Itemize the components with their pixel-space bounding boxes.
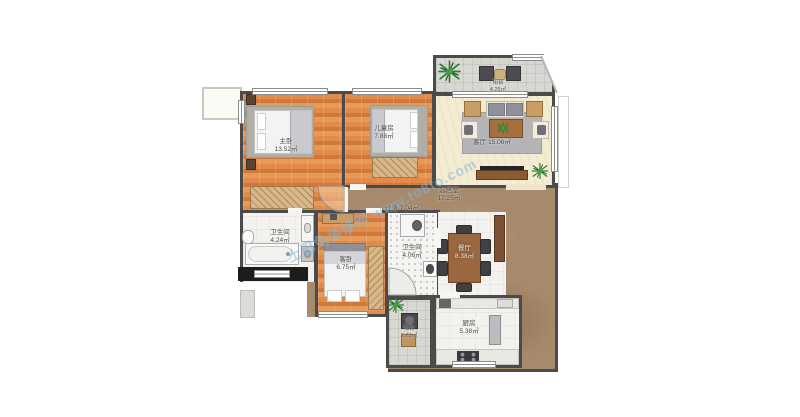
door-opening-kitchen bbox=[440, 292, 460, 298]
pillow bbox=[410, 131, 418, 148]
washer-drum bbox=[405, 316, 414, 325]
outside-area bbox=[302, 317, 388, 373]
room-label-dining: 餐厅 8.38㎡ bbox=[448, 245, 481, 261]
nightstand bbox=[246, 159, 256, 170]
sink-basin bbox=[412, 220, 422, 231]
sofa-cushion bbox=[506, 103, 523, 116]
window bbox=[238, 100, 245, 124]
balcony-table bbox=[494, 69, 506, 80]
side-table bbox=[464, 101, 481, 117]
toilet-seat bbox=[426, 264, 434, 274]
room-label-kitchen: 厨房 5.38㎡ bbox=[448, 320, 490, 336]
window bbox=[318, 311, 368, 318]
room-label-master: 主卧 13.52㎡ bbox=[262, 138, 310, 154]
dining-chair bbox=[437, 261, 448, 276]
plant-icon bbox=[437, 59, 462, 84]
room-label-balcony-top: 阳台 4.25㎡ bbox=[481, 80, 515, 94]
plant-icon bbox=[387, 296, 405, 314]
dining-chair bbox=[480, 239, 491, 254]
door-opening-bathroom-2 bbox=[436, 228, 441, 248]
room-label-hall: 起居室 17.25㎡ bbox=[426, 187, 472, 203]
hall-living-opening bbox=[506, 184, 546, 190]
room-label-living: 客厅 15.06㎡ bbox=[462, 139, 522, 147]
plant-icon bbox=[531, 162, 549, 180]
door-opening-master bbox=[343, 187, 348, 212]
fridge bbox=[489, 315, 501, 345]
dining-chair bbox=[456, 283, 472, 292]
door-opening-children bbox=[350, 184, 366, 190]
wardrobe bbox=[250, 186, 314, 209]
window bbox=[452, 361, 496, 368]
sink-basin bbox=[304, 223, 311, 233]
window bbox=[551, 106, 558, 172]
flower-bed-platform bbox=[202, 87, 242, 120]
pillow bbox=[327, 290, 342, 302]
wardrobe bbox=[368, 246, 384, 310]
room-label-bathroom-1: 卫生间 4.24㎡ bbox=[258, 229, 302, 245]
pillow bbox=[257, 113, 266, 130]
door-opening-bathroom-1 bbox=[288, 208, 302, 213]
tv-stand bbox=[476, 170, 528, 180]
bathtub-drain bbox=[286, 252, 290, 256]
room-label-guest: 客卧 6.75㎡ bbox=[328, 256, 364, 272]
room-label-corridor: 过道 7.04㎡ bbox=[374, 205, 430, 213]
floor-plan: 主卧 13.52㎡ 儿童房 7.88㎡ 客厅 15.06㎡ 阳台 4.25㎡ 起… bbox=[0, 0, 800, 417]
toilet bbox=[242, 230, 254, 244]
pillow bbox=[410, 112, 418, 129]
balcony-chair bbox=[479, 66, 494, 81]
wardrobe bbox=[372, 157, 418, 178]
right-bay-platform bbox=[558, 96, 569, 188]
washer-drum bbox=[304, 250, 311, 258]
dresser bbox=[322, 213, 354, 224]
kitchen-sink bbox=[497, 299, 513, 308]
room-label-balcony-bottom: 阳台 2.63㎡ bbox=[394, 326, 424, 340]
tall-cabinet bbox=[494, 215, 505, 262]
dining-chair bbox=[480, 261, 491, 276]
exterior-ledge bbox=[240, 290, 255, 318]
dresser-item bbox=[330, 214, 337, 220]
window bbox=[252, 88, 328, 95]
pillow bbox=[345, 290, 360, 302]
side-table bbox=[526, 101, 543, 117]
window bbox=[352, 88, 422, 95]
counter-appliance bbox=[439, 299, 451, 308]
sofa-cushion bbox=[488, 103, 505, 116]
dining-chair bbox=[456, 225, 472, 234]
plant-icon bbox=[496, 121, 510, 135]
window bbox=[254, 270, 290, 278]
room-label-bathroom-2: 卫生间 4.06㎡ bbox=[390, 244, 434, 260]
room-label-children: 儿童房 7.88㎡ bbox=[360, 125, 408, 141]
outside-area bbox=[222, 282, 307, 378]
window bbox=[512, 54, 544, 61]
balcony-chair bbox=[506, 66, 521, 81]
armchair-seat bbox=[464, 125, 473, 135]
nightstand bbox=[246, 94, 256, 105]
armchair-seat bbox=[537, 125, 546, 135]
